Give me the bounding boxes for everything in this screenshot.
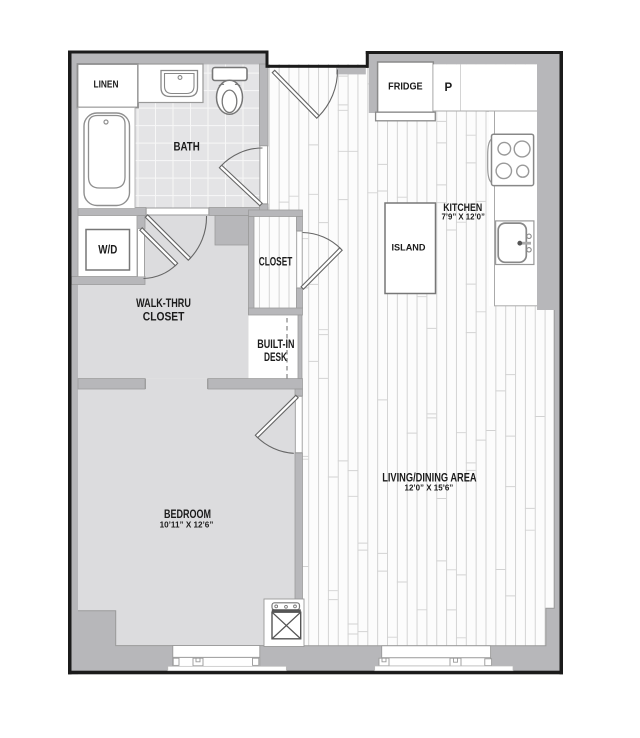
- svg-text:LIVING/DINING AREA: LIVING/DINING AREA: [382, 470, 477, 484]
- svg-text:7’9” X 12’0”: 7’9” X 12’0”: [441, 213, 485, 222]
- svg-text:P: P: [444, 82, 452, 94]
- svg-text:CLOSET: CLOSET: [143, 309, 185, 323]
- svg-text:LINEN: LINEN: [94, 79, 119, 91]
- svg-text:WALK-THRU: WALK-THRU: [136, 296, 191, 310]
- svg-text:CLOSET: CLOSET: [259, 255, 293, 269]
- svg-text:DESK: DESK: [264, 350, 287, 364]
- svg-text:BEDROOM: BEDROOM: [164, 507, 211, 521]
- svg-text:W/D: W/D: [98, 243, 117, 257]
- svg-text:FRIDGE: FRIDGE: [388, 82, 423, 93]
- svg-text:12’0” X 15’6”: 12’0” X 15’6”: [405, 484, 454, 493]
- svg-text:BUILT-IN: BUILT-IN: [257, 337, 294, 351]
- svg-text:10’11” X 12’6”: 10’11” X 12’6”: [160, 521, 214, 530]
- svg-text:ISLAND: ISLAND: [392, 243, 426, 254]
- svg-text:BATH: BATH: [173, 139, 199, 153]
